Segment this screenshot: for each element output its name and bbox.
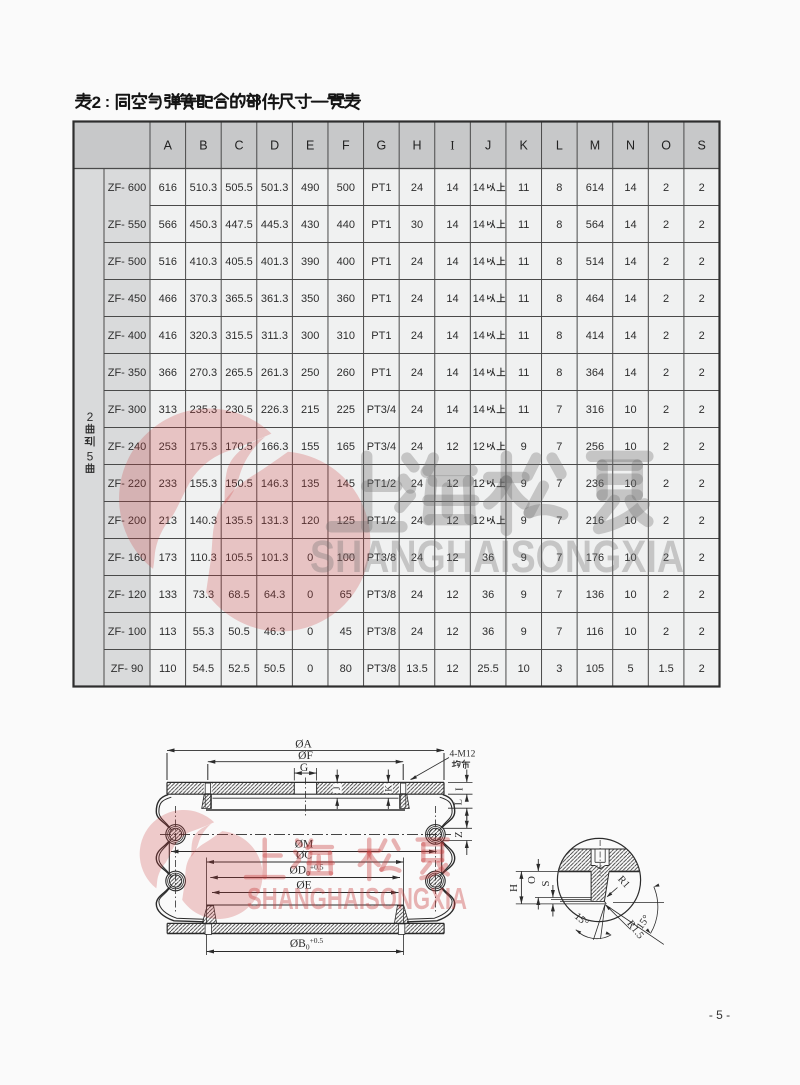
svg-text:PT3/8: PT3/8 — [367, 663, 396, 675]
svg-text:K: K — [520, 138, 529, 152]
svg-text:10: 10 — [624, 404, 636, 416]
svg-text:SHANGHAISONGXIA: SHANGHAISONGXIA — [310, 531, 684, 582]
svg-text:261.3: 261.3 — [261, 367, 289, 379]
svg-text:ØA: ØA — [295, 738, 312, 750]
svg-text:464: 464 — [586, 293, 604, 305]
svg-text:7: 7 — [556, 441, 562, 453]
svg-text:F: F — [342, 138, 350, 152]
svg-text:D: D — [270, 138, 279, 152]
svg-text:110: 110 — [159, 663, 177, 675]
svg-text:10: 10 — [624, 589, 636, 601]
svg-text:7: 7 — [556, 404, 562, 416]
svg-text:5: 5 — [87, 450, 94, 464]
svg-text:14: 14 — [624, 367, 636, 379]
svg-text:105: 105 — [586, 663, 604, 675]
svg-text:80: 80 — [340, 663, 352, 675]
svg-text:173: 173 — [159, 552, 177, 564]
svg-text:14: 14 — [473, 293, 485, 305]
svg-text:12: 12 — [446, 663, 458, 675]
svg-text:Z: Z — [454, 831, 465, 837]
svg-text:361.3: 361.3 — [261, 293, 289, 305]
svg-text:2: 2 — [699, 626, 705, 638]
svg-text:ZF- 350: ZF- 350 — [108, 367, 147, 379]
svg-text:K: K — [384, 785, 394, 792]
svg-text:315.5: 315.5 — [225, 330, 253, 342]
svg-text:2: 2 — [699, 552, 705, 564]
svg-text:8: 8 — [556, 367, 562, 379]
svg-text:I: I — [454, 787, 465, 791]
svg-text:24: 24 — [411, 256, 423, 268]
svg-text:8: 8 — [556, 219, 562, 231]
svg-text:ZF- 400: ZF- 400 — [108, 330, 147, 342]
svg-text:316: 316 — [586, 404, 604, 416]
svg-text:300: 300 — [301, 330, 319, 342]
svg-text:226.3: 226.3 — [261, 404, 289, 416]
svg-text:12: 12 — [446, 441, 458, 453]
svg-text:370.3: 370.3 — [190, 293, 218, 305]
svg-text:11: 11 — [518, 293, 529, 305]
svg-text:B: B — [199, 138, 207, 152]
svg-text:414: 414 — [586, 330, 604, 342]
svg-text:2: 2 — [663, 626, 669, 638]
svg-text:25.5: 25.5 — [477, 663, 498, 675]
svg-text:10: 10 — [624, 626, 636, 638]
svg-text:225: 225 — [337, 404, 355, 416]
svg-text:9: 9 — [521, 589, 527, 601]
svg-text:447.5: 447.5 — [225, 219, 253, 231]
svg-text:2: 2 — [92, 93, 101, 112]
svg-text:I: I — [450, 138, 454, 152]
svg-text:2: 2 — [663, 441, 669, 453]
svg-text:A: A — [164, 138, 173, 152]
svg-text:2: 2 — [663, 589, 669, 601]
svg-text:14: 14 — [446, 219, 458, 231]
svg-text:ZF- 550: ZF- 550 — [108, 219, 147, 231]
svg-text:2: 2 — [699, 404, 705, 416]
svg-text:C: C — [234, 138, 243, 152]
svg-text:113: 113 — [159, 626, 177, 638]
svg-text:3: 3 — [556, 663, 562, 675]
svg-text:7: 7 — [556, 626, 562, 638]
svg-text:136: 136 — [586, 589, 604, 601]
svg-text:12: 12 — [446, 589, 458, 601]
svg-text:510.3: 510.3 — [190, 182, 218, 194]
svg-text:14: 14 — [473, 404, 485, 416]
svg-text:310: 310 — [337, 330, 355, 342]
svg-text:G: G — [377, 138, 387, 152]
svg-text:165: 165 — [337, 441, 355, 453]
svg-text:445.3: 445.3 — [261, 219, 289, 231]
svg-text:440: 440 — [337, 219, 355, 231]
svg-text:2: 2 — [663, 293, 669, 305]
svg-text:155.3: 155.3 — [190, 478, 218, 490]
svg-text:320.3: 320.3 — [190, 330, 218, 342]
svg-text:2: 2 — [87, 410, 94, 424]
svg-text:360: 360 — [337, 293, 355, 305]
svg-text:566: 566 — [159, 219, 177, 231]
svg-text:PT1: PT1 — [371, 293, 391, 305]
svg-text:0: 0 — [307, 626, 313, 638]
svg-text:PT3/8: PT3/8 — [367, 626, 396, 638]
svg-text:133: 133 — [159, 589, 177, 601]
svg-text:501.3: 501.3 — [261, 182, 289, 194]
svg-text:J: J — [485, 138, 491, 152]
svg-text:24: 24 — [411, 515, 423, 527]
svg-text:O: O — [526, 876, 538, 884]
svg-text:50.5: 50.5 — [264, 663, 285, 675]
svg-text:24: 24 — [411, 404, 423, 416]
svg-text:14: 14 — [473, 219, 485, 231]
svg-text:11: 11 — [518, 182, 529, 194]
svg-text:ZF- 120: ZF- 120 — [108, 589, 147, 601]
svg-text:614: 614 — [586, 182, 604, 194]
svg-text:140.3: 140.3 — [190, 515, 218, 527]
svg-text:2: 2 — [663, 219, 669, 231]
svg-text:ZF- 600: ZF- 600 — [108, 182, 147, 194]
svg-text:14: 14 — [446, 182, 458, 194]
svg-text:416: 416 — [159, 330, 177, 342]
svg-text:2: 2 — [699, 330, 705, 342]
svg-text:270.3: 270.3 — [190, 367, 218, 379]
svg-text:390: 390 — [301, 256, 319, 268]
svg-text:7: 7 — [556, 589, 562, 601]
svg-text:4-M12: 4-M12 — [450, 749, 476, 759]
svg-text:11: 11 — [518, 330, 529, 342]
svg-text:516: 516 — [159, 256, 177, 268]
svg-text:466: 466 — [159, 293, 177, 305]
svg-text:2: 2 — [663, 256, 669, 268]
svg-text:O: O — [661, 138, 671, 152]
svg-text:N: N — [626, 138, 635, 152]
svg-text:S: S — [698, 138, 706, 152]
svg-text:24: 24 — [411, 626, 423, 638]
svg-text:116: 116 — [586, 626, 604, 638]
svg-text:260: 260 — [337, 367, 355, 379]
svg-text:PT1: PT1 — [371, 219, 391, 231]
svg-text:E: E — [306, 138, 314, 152]
svg-text:14: 14 — [446, 330, 458, 342]
svg-text:PT1: PT1 — [371, 182, 391, 194]
svg-text:2: 2 — [699, 367, 705, 379]
svg-text:11: 11 — [518, 404, 529, 416]
svg-text:H: H — [412, 138, 421, 152]
svg-text:8: 8 — [556, 330, 562, 342]
svg-text:14: 14 — [446, 367, 458, 379]
svg-text:14: 14 — [473, 182, 485, 194]
svg-text:564: 564 — [586, 219, 604, 231]
svg-text:430: 430 — [301, 219, 319, 231]
svg-text:- 5 -: - 5 - — [709, 1008, 730, 1022]
svg-text:PT3/4: PT3/4 — [367, 441, 396, 453]
svg-text:166.3: 166.3 — [261, 441, 289, 453]
svg-text:7: 7 — [556, 478, 562, 490]
svg-text:8: 8 — [556, 182, 562, 194]
svg-text:2: 2 — [699, 589, 705, 601]
svg-text:L: L — [454, 799, 465, 805]
svg-text:ZF- 100: ZF- 100 — [108, 626, 147, 638]
svg-text:24: 24 — [411, 589, 423, 601]
svg-text:11: 11 — [518, 219, 529, 231]
svg-text:SHANGHAISONGXIA: SHANGHAISONGXIA — [247, 881, 467, 916]
svg-text:155: 155 — [301, 441, 319, 453]
svg-text:2: 2 — [663, 330, 669, 342]
svg-text:616: 616 — [159, 182, 177, 194]
svg-text:14: 14 — [473, 367, 485, 379]
svg-text:PT1: PT1 — [371, 330, 391, 342]
svg-text:2: 2 — [663, 182, 669, 194]
svg-text:2: 2 — [699, 515, 705, 527]
svg-text:350: 350 — [301, 293, 319, 305]
svg-text:14: 14 — [624, 256, 636, 268]
svg-text::: : — [105, 94, 110, 111]
svg-text:13.5: 13.5 — [406, 663, 427, 675]
svg-text:500: 500 — [337, 182, 355, 194]
svg-text:14: 14 — [624, 219, 636, 231]
svg-text:2: 2 — [663, 404, 669, 416]
svg-text:24: 24 — [411, 330, 423, 342]
svg-text:14: 14 — [624, 330, 636, 342]
svg-text:14: 14 — [446, 404, 458, 416]
svg-text:14: 14 — [624, 182, 636, 194]
svg-text:12: 12 — [446, 626, 458, 638]
svg-text:9: 9 — [521, 626, 527, 638]
svg-text:PT1: PT1 — [371, 367, 391, 379]
svg-text:55.3: 55.3 — [193, 626, 214, 638]
svg-text:ZF- 300: ZF- 300 — [108, 404, 147, 416]
svg-text:L: L — [556, 138, 563, 152]
svg-text:2: 2 — [699, 663, 705, 675]
svg-text:364: 364 — [586, 367, 604, 379]
svg-text:14: 14 — [473, 256, 485, 268]
svg-text:2: 2 — [699, 256, 705, 268]
svg-text:366: 366 — [159, 367, 177, 379]
svg-text:8: 8 — [556, 256, 562, 268]
svg-text:9: 9 — [521, 441, 527, 453]
svg-text:450.3: 450.3 — [190, 219, 218, 231]
svg-text:36: 36 — [482, 626, 494, 638]
svg-text:365.5: 365.5 — [225, 293, 253, 305]
svg-text:400: 400 — [337, 256, 355, 268]
svg-text:490: 490 — [301, 182, 319, 194]
svg-text:24: 24 — [411, 367, 423, 379]
svg-text:2: 2 — [699, 219, 705, 231]
svg-text:24: 24 — [411, 293, 423, 305]
svg-text:265.5: 265.5 — [225, 367, 253, 379]
svg-text:0: 0 — [307, 663, 313, 675]
svg-text:11: 11 — [518, 256, 529, 268]
svg-text:10: 10 — [518, 663, 530, 675]
svg-text:S: S — [540, 880, 552, 886]
svg-text:24: 24 — [411, 441, 423, 453]
svg-text:2: 2 — [663, 367, 669, 379]
svg-text:45: 45 — [340, 626, 352, 638]
svg-text:2: 2 — [699, 478, 705, 490]
svg-text:J: J — [333, 786, 343, 790]
svg-text:8: 8 — [556, 293, 562, 305]
svg-text:36: 36 — [482, 589, 494, 601]
svg-text:11: 11 — [518, 367, 529, 379]
svg-text:505.5: 505.5 — [225, 182, 253, 194]
svg-text:514: 514 — [586, 256, 604, 268]
svg-text:PT3/4: PT3/4 — [367, 404, 396, 416]
svg-text:311.3: 311.3 — [261, 330, 288, 342]
svg-text:215: 215 — [301, 404, 319, 416]
svg-text:54.5: 54.5 — [193, 663, 214, 675]
svg-text:M: M — [590, 138, 600, 152]
svg-text:2: 2 — [699, 293, 705, 305]
svg-text:2: 2 — [699, 182, 705, 194]
svg-text:PT3/8: PT3/8 — [367, 589, 396, 601]
svg-text:14: 14 — [446, 256, 458, 268]
svg-text:PT1: PT1 — [371, 256, 391, 268]
svg-text:313: 313 — [159, 404, 177, 416]
svg-text:2: 2 — [699, 441, 705, 453]
svg-text:2: 2 — [663, 478, 669, 490]
svg-text:ZF- 450: ZF- 450 — [108, 293, 147, 305]
svg-text:H: H — [508, 884, 520, 892]
svg-text:410.3: 410.3 — [190, 256, 218, 268]
svg-text:401.3: 401.3 — [261, 256, 289, 268]
svg-text:ZF- 90: ZF- 90 — [111, 663, 143, 675]
svg-text:2: 2 — [663, 515, 669, 527]
svg-text:14: 14 — [446, 293, 458, 305]
svg-text:14: 14 — [473, 330, 485, 342]
svg-text:14: 14 — [624, 293, 636, 305]
svg-text:250: 250 — [301, 367, 319, 379]
svg-text:52.5: 52.5 — [228, 663, 249, 675]
svg-text:24: 24 — [411, 182, 423, 194]
svg-text:50.5: 50.5 — [228, 626, 249, 638]
svg-text:ZF- 500: ZF- 500 — [108, 256, 147, 268]
svg-text:5: 5 — [627, 663, 633, 675]
svg-text:ØF: ØF — [298, 750, 313, 762]
svg-text:30: 30 — [411, 219, 423, 231]
svg-text:405.5: 405.5 — [225, 256, 253, 268]
svg-text:12: 12 — [473, 441, 485, 453]
svg-text:1.5: 1.5 — [658, 663, 673, 675]
